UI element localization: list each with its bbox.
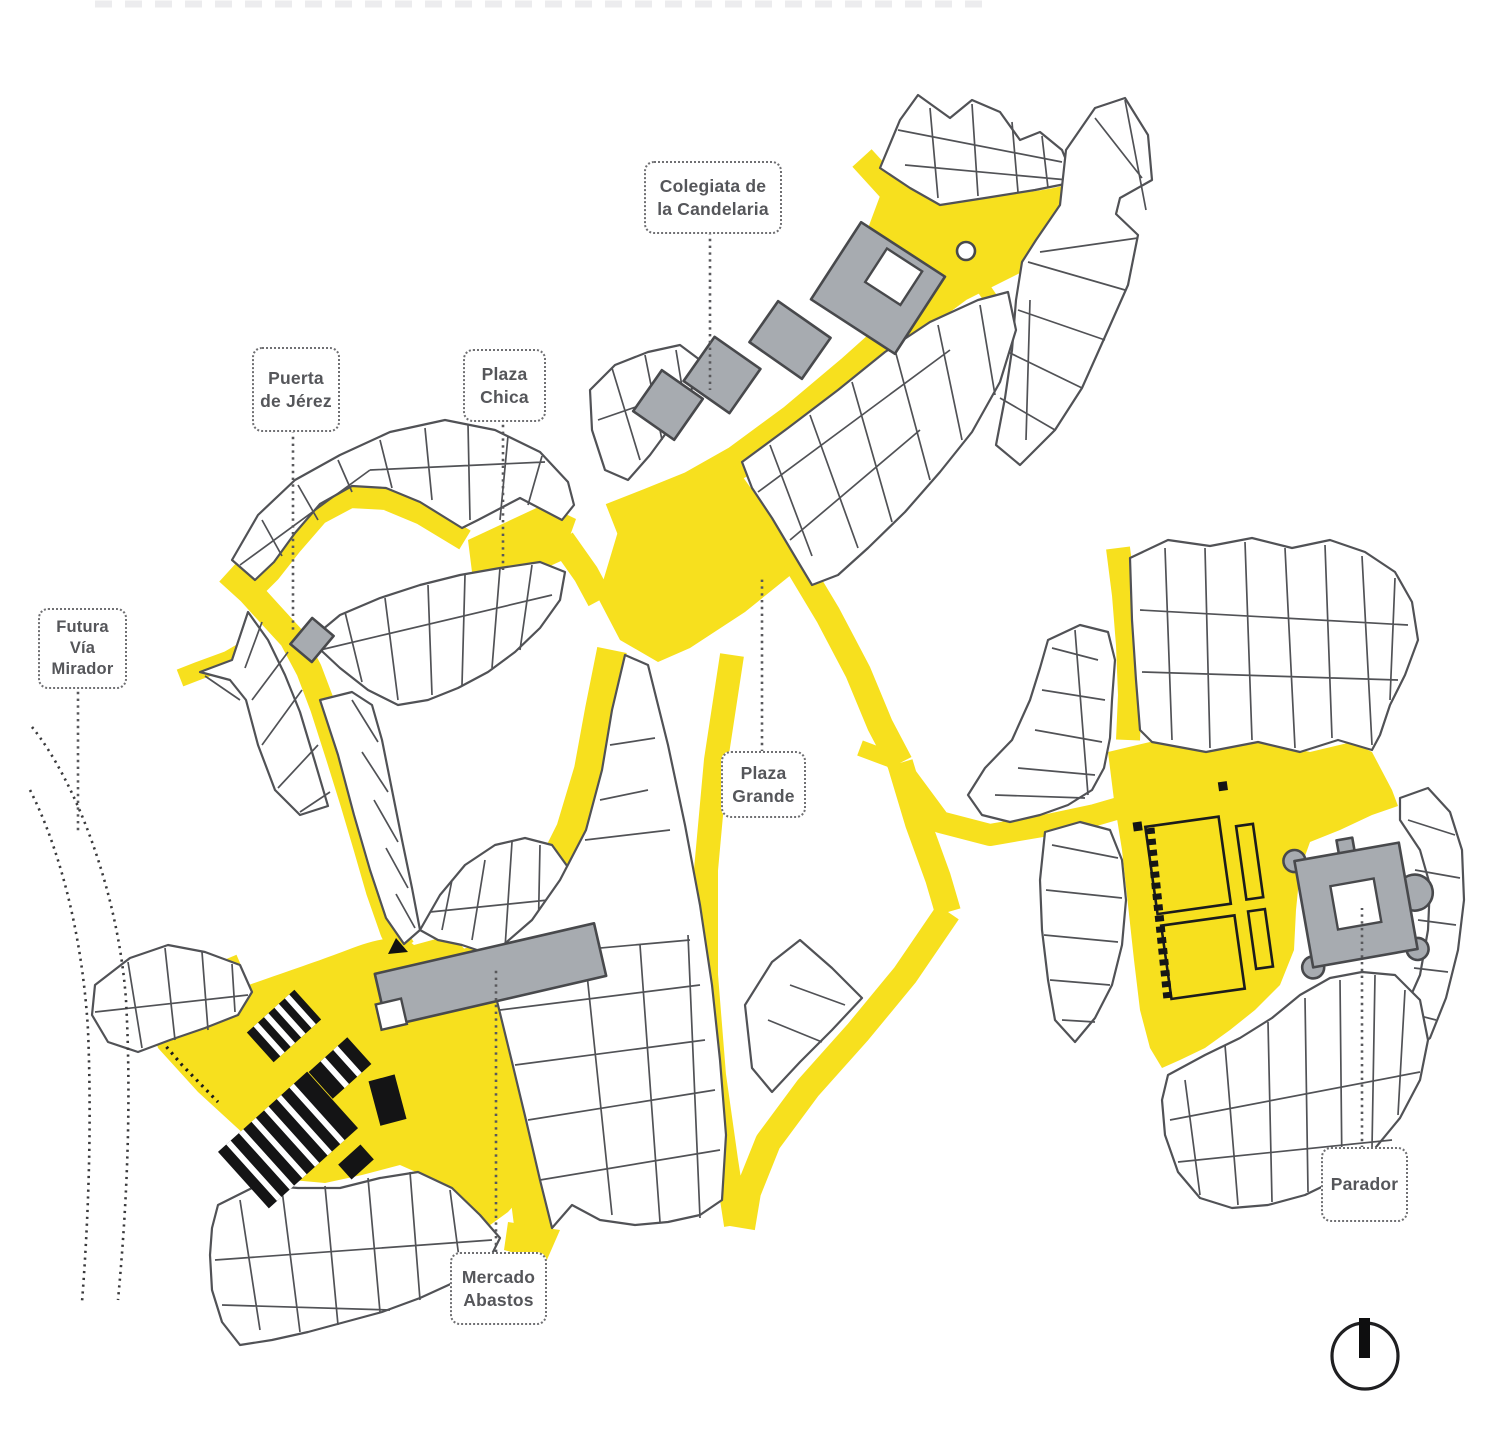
mercado-courtyard (376, 999, 407, 1030)
north-indicator-icon (1332, 1318, 1398, 1389)
label-mercado-abastos: Mercado Abastos (450, 1252, 547, 1325)
label-line: Abastos (463, 1289, 533, 1311)
label-line: Puerta (268, 367, 324, 389)
colegiata-annex-1 (749, 301, 830, 379)
label-line: Colegiata de (660, 175, 766, 197)
street-parador-north (1118, 548, 1130, 740)
street-chica-to-grande (562, 540, 600, 600)
label-colegiata-de-la-candelaria: Colegiata de la Candelaria (644, 161, 782, 234)
castle-courtyard (1330, 879, 1381, 930)
label-line: Parador (1331, 1173, 1399, 1195)
label-line: de Jérez (260, 390, 332, 412)
label-line: Chica (480, 386, 529, 408)
future-road-line-2 (30, 790, 90, 1302)
block-south-wedge (745, 940, 862, 1092)
block-parador-west (1040, 822, 1126, 1042)
block-parador-nw (968, 625, 1115, 822)
label-line: Mirador (52, 659, 114, 680)
label-parador: Parador (1321, 1147, 1408, 1222)
label-line: Mercado (462, 1266, 535, 1288)
label-plaza-chica: Plaza Chica (463, 349, 546, 422)
block-center-north (310, 562, 565, 705)
street-grande-southeast (795, 560, 900, 763)
fountain-circle (957, 242, 975, 260)
label-line: Plaza (482, 363, 528, 385)
label-line: Grande (732, 785, 794, 807)
label-line: Vía (70, 638, 95, 659)
label-line: la Candelaria (657, 198, 769, 220)
label-plaza-grande: Plaza Grande (721, 751, 806, 818)
label-futura-via-mirador: Futura Vía Mirador (38, 608, 127, 689)
label-line: Futura (56, 617, 109, 638)
block-parador-north (1130, 538, 1418, 752)
urban-plan-map: Colegiata de la Candelaria Puerta de Jér… (0, 0, 1512, 1431)
label-line: Plaza (741, 762, 787, 784)
label-puerta-de-jerez: Puerta de Jérez (252, 347, 340, 432)
